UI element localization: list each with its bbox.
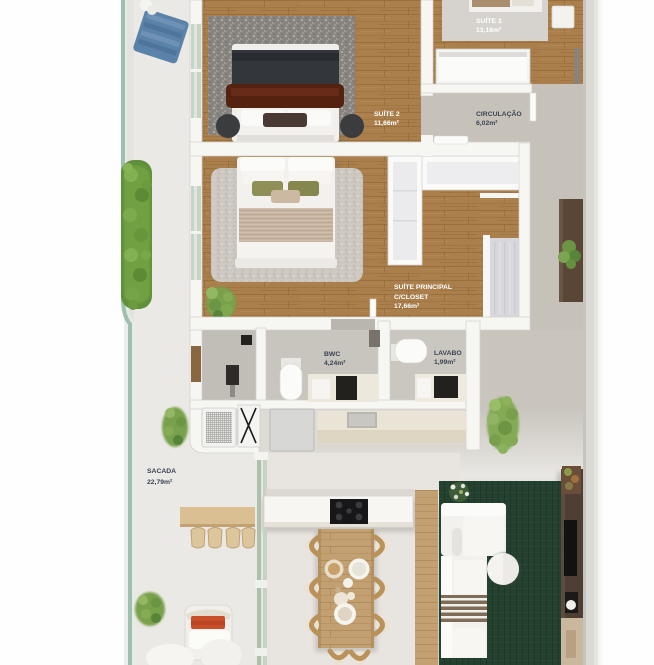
svg-text:C/CLOSET: C/CLOSET — [394, 294, 429, 301]
svg-text:SUÍTE 3: SUÍTE 3 — [476, 16, 502, 25]
svg-text:BWC: BWC — [324, 351, 340, 358]
svg-text:SUÍTE PRINCIPAL: SUÍTE PRINCIPAL — [394, 282, 452, 291]
svg-text:CIRCULAÇÃO: CIRCULAÇÃO — [476, 109, 522, 118]
svg-text:13,16m²: 13,16m² — [476, 27, 502, 34]
svg-text:6,02m²: 6,02m² — [476, 120, 498, 127]
svg-text:SUÍTE 2: SUÍTE 2 — [374, 109, 400, 118]
svg-text:LAVABO: LAVABO — [434, 350, 462, 357]
svg-text:17,66m²: 17,66m² — [394, 303, 420, 310]
svg-text:4,24m²: 4,24m² — [324, 360, 346, 367]
svg-text:SACADA: SACADA — [147, 468, 176, 475]
svg-text:11,66m²: 11,66m² — [374, 120, 400, 127]
svg-text:22,79m²: 22,79m² — [147, 479, 173, 486]
svg-text:1,99m²: 1,99m² — [434, 359, 456, 366]
